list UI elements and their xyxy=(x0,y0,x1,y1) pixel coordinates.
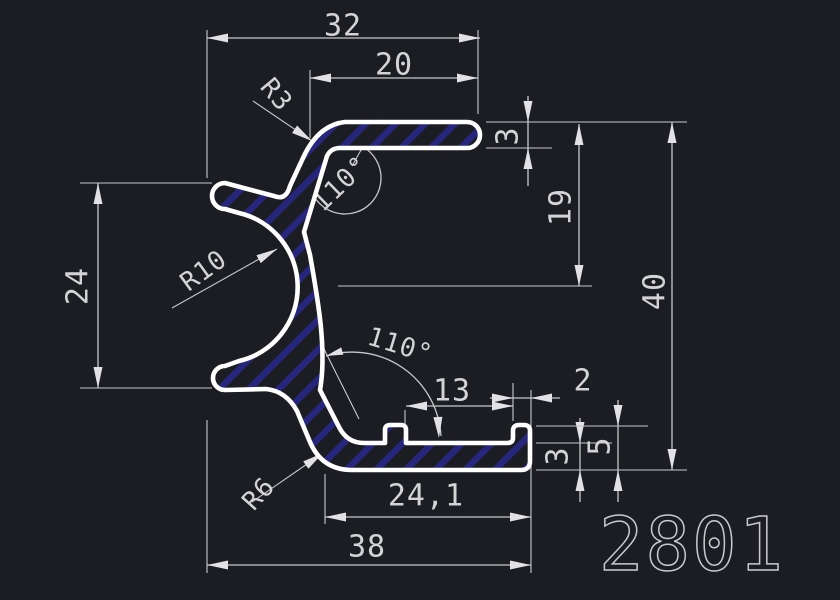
dim-text-40: 40 xyxy=(638,272,673,310)
dim-length-13: 13 xyxy=(405,374,513,438)
dim-text-32: 32 xyxy=(324,9,362,44)
dim-text-24: 24 xyxy=(61,267,96,305)
arrowhead xyxy=(614,470,623,491)
arrowhead xyxy=(510,513,531,522)
arrowhead xyxy=(207,561,228,570)
arrowhead xyxy=(457,74,478,83)
arrowhead xyxy=(459,34,480,43)
arrowhead xyxy=(575,124,584,145)
cad-viewport: 32 20 R3 110° 3 19 xyxy=(0,0,840,600)
dim-bottom-angle: 110° xyxy=(322,322,443,438)
dim-text-38: 38 xyxy=(348,530,386,565)
arrowhead xyxy=(614,405,623,426)
arrowhead xyxy=(531,394,552,403)
arrowhead xyxy=(524,101,533,122)
arrowhead xyxy=(510,561,531,570)
dim-text-3-bottom: 3 xyxy=(541,446,576,465)
dim-text-r3: R3 xyxy=(254,73,298,118)
leader-radius-r3: R3 xyxy=(253,73,315,145)
dim-top-arm-thickness: 3 xyxy=(486,96,687,186)
arrowhead xyxy=(406,402,427,411)
dim-overall-height: 40 xyxy=(536,122,687,470)
arrowhead xyxy=(325,347,343,359)
dim-text-r6: R6 xyxy=(237,472,282,517)
arrowhead xyxy=(325,513,346,522)
arrowhead xyxy=(207,34,228,43)
dim-text-3-top: 3 xyxy=(491,126,526,145)
arrowhead xyxy=(524,148,533,169)
part-number: 2801 xyxy=(599,502,785,588)
dim-text-24-1: 24,1 xyxy=(388,479,464,514)
dim-overall-width-top: 32 xyxy=(207,9,480,179)
dim-text-angle-bottom: 110° xyxy=(364,322,436,370)
arrowhead xyxy=(492,394,513,403)
arrowhead xyxy=(668,122,677,143)
dim-text-20: 20 xyxy=(375,48,413,83)
arrowhead xyxy=(492,402,513,411)
leader-radius-r10: R10 xyxy=(172,244,279,308)
arrowhead xyxy=(576,470,585,491)
arrowhead xyxy=(94,183,103,204)
arrowhead xyxy=(310,74,331,83)
arrowhead xyxy=(94,367,103,388)
leader-radius-r6: R6 xyxy=(237,449,326,516)
arrowhead xyxy=(668,449,677,470)
dim-bottom-inner-length: 24,1 xyxy=(325,474,531,524)
dim-text-2: 2 xyxy=(573,364,592,399)
arrowhead xyxy=(256,245,279,263)
dim-text-13: 13 xyxy=(433,374,471,409)
dim-bottom-wall-thickness: 3 xyxy=(536,418,612,502)
drawing-canvas[interactable]: 32 20 R3 110° 3 19 xyxy=(0,0,840,600)
arrowhead xyxy=(575,265,584,286)
dim-text-5: 5 xyxy=(583,436,618,455)
dim-text-19: 19 xyxy=(544,188,579,226)
arrowhead xyxy=(433,417,443,438)
